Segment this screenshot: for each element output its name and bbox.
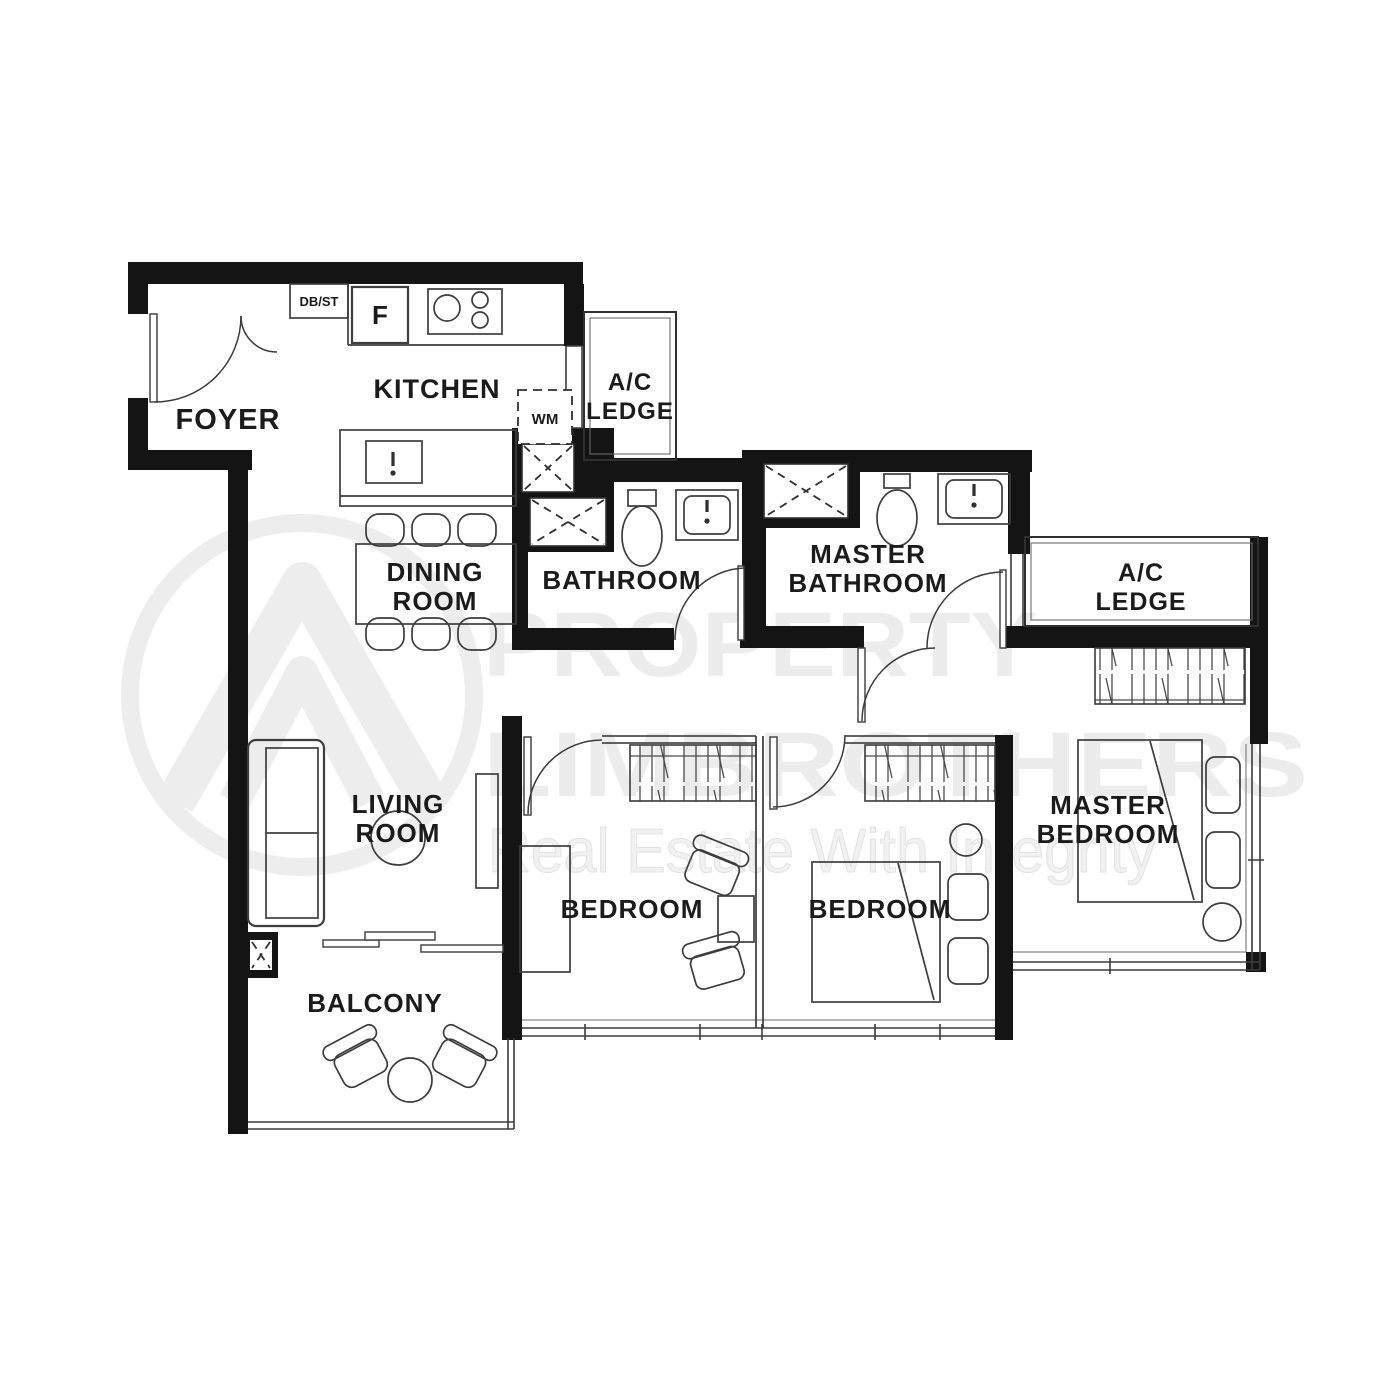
label-bedroom2: BEDROOM [809, 894, 952, 924]
bathroom-fixtures [622, 490, 738, 566]
label-balcony: BALCONY [307, 988, 443, 1018]
label-ac-ledge-2a: A/C [1118, 559, 1164, 587]
floor-plan-image: PROPERTY LIMBROTHERS Real Estate With In… [0, 0, 1400, 1400]
label-fridge: F [372, 300, 388, 330]
bedroom1-side-table [718, 896, 754, 942]
label-living-b: ROOM [356, 818, 441, 848]
label-ac-ledge-1b: LEDGE [586, 398, 674, 425]
balcony-chair [321, 1022, 395, 1092]
label-foyer: FOYER [176, 404, 281, 436]
kitchen-counter [340, 430, 516, 506]
bedroom2-wardrobe [865, 745, 995, 801]
master-bathroom-fixtures [764, 464, 1010, 546]
bedroom2-side-table [948, 938, 988, 984]
master-wardrobe [1095, 648, 1245, 704]
label-bedroom1: BEDROOM [561, 894, 704, 924]
bathroom-sink [676, 490, 738, 540]
toilet [622, 490, 662, 566]
master-sink [938, 474, 1010, 524]
balcony-chair [425, 1022, 499, 1092]
label-master-bed-a: MASTER [1050, 790, 1166, 820]
label-wm: WM [532, 411, 559, 428]
sliding-door [323, 932, 503, 952]
balcony-furniture [321, 1022, 500, 1102]
label-master-bath-b: BATHROOM [788, 568, 947, 598]
floor-plan-page: PROPERTY LIMBROTHERS Real Estate With In… [0, 0, 1400, 1400]
stove [428, 289, 502, 334]
label-db-st: DB/ST [300, 294, 339, 309]
master-side-table [1206, 832, 1240, 888]
bedroom1-wardrobe [630, 745, 756, 801]
label-ac-ledge-1a: A/C [608, 369, 652, 396]
label-living-a: LIVING [352, 789, 445, 819]
bedroom1-chair [681, 930, 750, 992]
label-bathroom: BATHROOM [542, 565, 701, 595]
master-toilet [877, 474, 917, 546]
label-master-bed-b: BEDROOM [1037, 819, 1180, 849]
label-ac-ledge-2b: LEDGE [1095, 588, 1186, 616]
label-master-bath-a: MASTER [810, 539, 926, 569]
label-kitchen: KITCHEN [374, 374, 501, 404]
label-dining-a: DINING [387, 557, 484, 587]
balcony-table [388, 1058, 432, 1102]
label-dining-b: ROOM [393, 586, 478, 616]
master-round-table [1203, 903, 1241, 941]
entrance-door [150, 314, 277, 402]
master-shower [764, 464, 848, 518]
